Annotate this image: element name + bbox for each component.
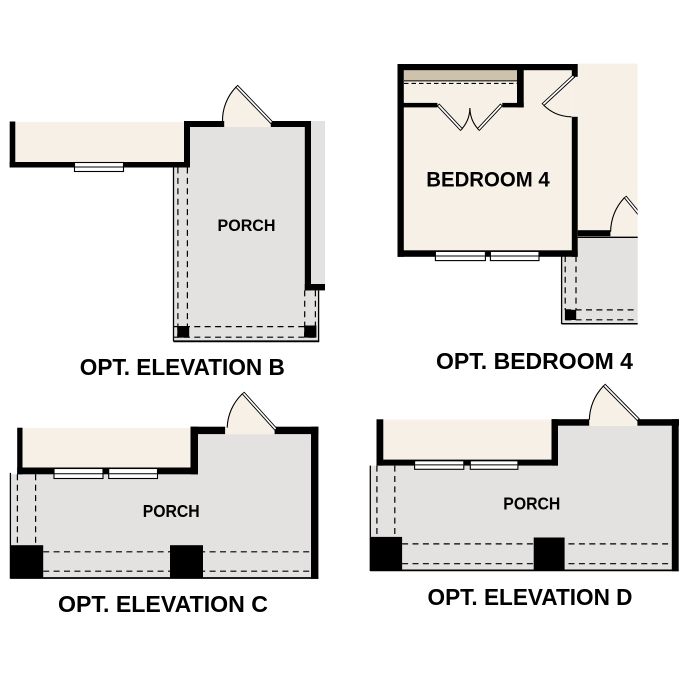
svg-text:OPT. BEDROOM 4: OPT. BEDROOM 4 <box>436 348 633 374</box>
svg-text:OPT. ELEVATION B: OPT. ELEVATION B <box>80 354 285 380</box>
svg-text:BEDROOM 4: BEDROOM 4 <box>426 168 550 191</box>
svg-text:PORCH: PORCH <box>143 501 200 521</box>
svg-text:OPT. ELEVATION C: OPT. ELEVATION C <box>58 591 268 617</box>
svg-text:PORCH: PORCH <box>503 494 560 514</box>
svg-text:PORCH: PORCH <box>218 217 276 235</box>
svg-text:OPT. ELEVATION D: OPT. ELEVATION D <box>428 584 633 610</box>
